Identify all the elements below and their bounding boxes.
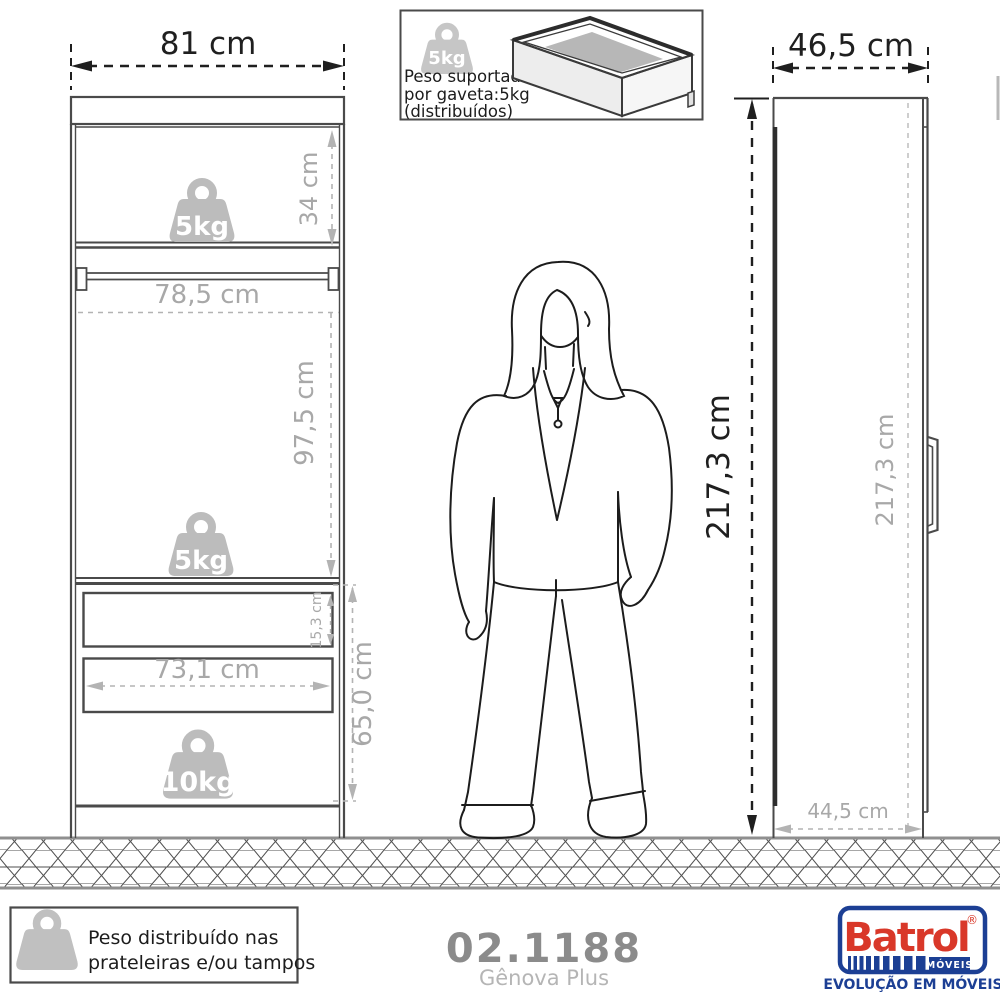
dim-middle-section (327, 313, 336, 577)
weight-label-drawers: 10kg (161, 767, 236, 798)
brand-name: Batrol (843, 915, 969, 961)
rod-bracket-left (77, 268, 87, 290)
floor-hex-pattern (0, 839, 1000, 887)
distribution-note-line1: Peso distribuído nas (88, 927, 279, 949)
drawer-note-line3: (distribuídos) (404, 102, 513, 121)
dim-base-depth (774, 825, 922, 834)
height-arrow-up (747, 99, 757, 119)
figure-pendant (553, 398, 562, 420)
product-identity: 02.1188 Gênova Plus (446, 926, 642, 990)
figure-right-hand (621, 577, 648, 606)
dim-label-drawer-height: 15,3 cm (309, 592, 325, 649)
dim-label-middle-section: 97,5 cm (290, 360, 320, 466)
product-name: Gênova Plus (479, 966, 609, 990)
drawer-note-line1: Peso suportado (404, 67, 531, 86)
side-view (773, 98, 938, 838)
figure-right-arm-inner (618, 492, 631, 577)
brand-registered-mark: ® (966, 913, 978, 927)
distribution-note-box: Peso distribuído nas prateleiras e/ou ta… (11, 908, 316, 983)
front-top-cap (71, 97, 344, 124)
dim-label-top-section: 34 cm (295, 152, 323, 227)
weight-label-top-shelf: 5kg (175, 212, 229, 242)
dim-label-side-height: 217,3 cm (871, 414, 899, 527)
drawer-front-1 (84, 593, 333, 647)
brand-division: MÓVEIS (926, 959, 974, 971)
dim-label-base-depth: 44,5 cm (807, 799, 888, 823)
figure-pants-right-outer (618, 582, 643, 793)
figure-left-arm-outer (450, 395, 506, 622)
weight-label-drawer-note: 5kg (428, 48, 465, 69)
human-figure (450, 262, 671, 838)
figure-pants-left-inner (531, 596, 556, 806)
drawer-note-box: 5kg Peso suportado por gaveta:5kg (distr… (401, 11, 703, 122)
dim-label-depth: 46,5 cm (788, 28, 914, 64)
dimension-diagram: 5kg 5kg 10kg 81 cm 34 cm 78,5 cm (0, 0, 1000, 1000)
figure-left-hand (466, 611, 487, 639)
brand-tagline: EVOLUÇÃO EM MÓVEIS (823, 975, 1000, 993)
dim-label-inner-width: 78,5 cm (154, 280, 260, 310)
front-view-weights: 5kg 5kg 10kg (161, 182, 236, 799)
figure-right-arm-outer (621, 390, 672, 590)
dim-top-section (328, 130, 337, 246)
dim-label-width: 81 cm (160, 26, 257, 62)
figure-pendant-drop (555, 421, 562, 428)
side-handle-inner (928, 445, 933, 526)
figure-pants-left-outer (464, 582, 494, 810)
figure-jacket-vneck (533, 368, 585, 520)
brand-logo: Batrol ® MÓVEIS EVOLUÇÃO EM MÓVEIS (823, 908, 1000, 993)
floor-strip (0, 838, 1000, 888)
overall-height-dimension: 217,3 cm (701, 99, 769, 836)
side-view-dimensions: 46,5 cm 217,3 cm 44,5 cm (773, 28, 928, 834)
figure-pants-right-inner (562, 600, 592, 798)
diagram-canvas: 5kg 5kg 10kg 81 cm 34 cm 78,5 cm (0, 0, 1000, 1000)
weight-label-middle-shelf: 5kg (174, 546, 228, 576)
figure-right-cuff (590, 791, 645, 801)
dim-label-lower-section: 65,0 cm (348, 641, 378, 747)
dim-label-overall-height: 217,3 cm (701, 394, 737, 540)
distribution-note-line2: prateleiras e/ou tampos (88, 952, 315, 974)
height-arrow-down (747, 815, 757, 835)
rod-bracket-right (329, 268, 339, 290)
figure-left-shoe (460, 805, 534, 838)
dim-label-drawer-width: 73,1 cm (154, 655, 260, 685)
